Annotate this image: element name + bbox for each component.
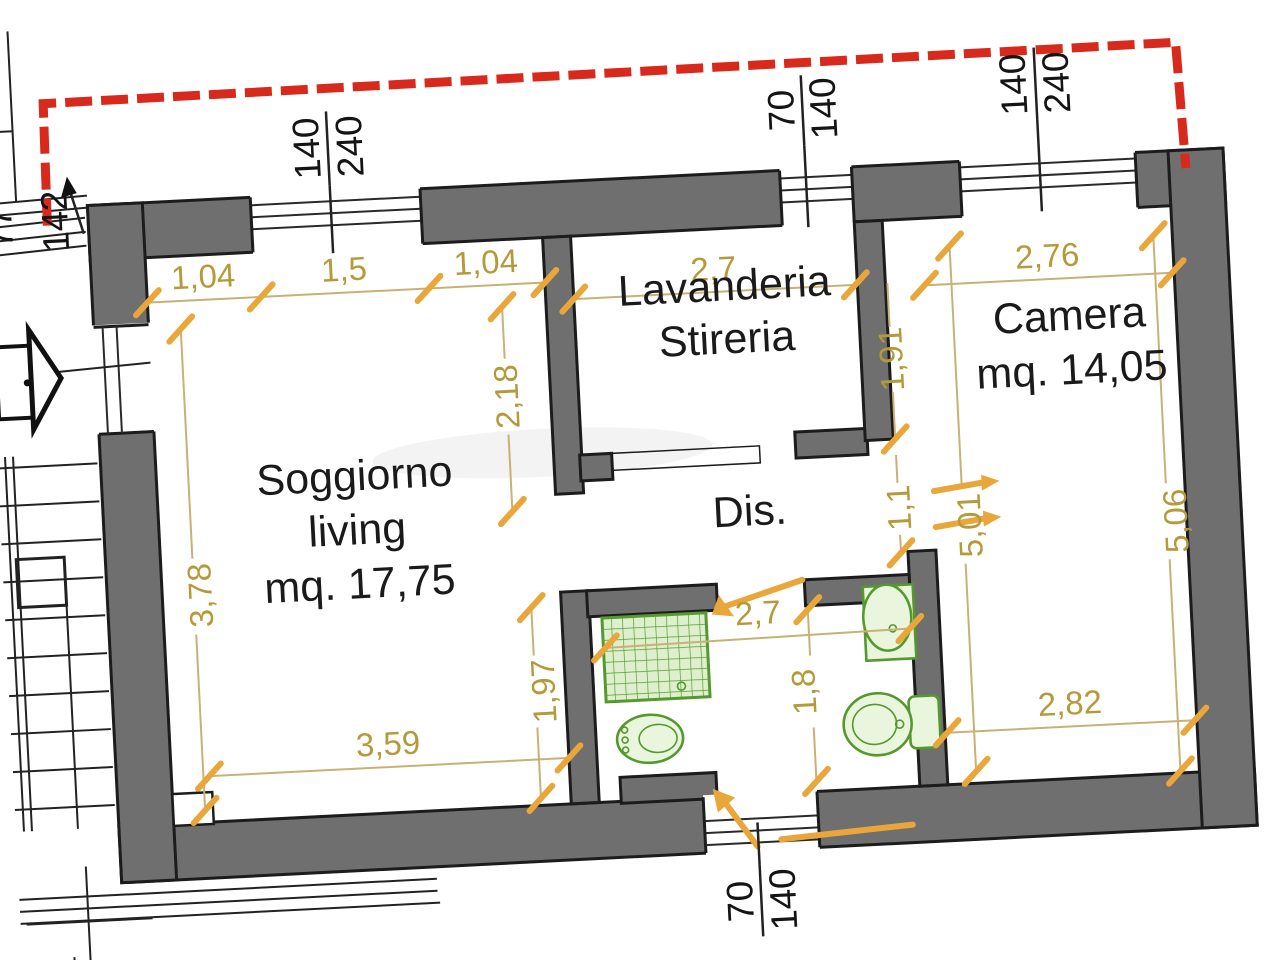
dim-camera-left: 5,01: [950, 492, 990, 558]
window-top-right-height: 240: [1034, 51, 1078, 115]
dim-camera-right: 5,06: [1156, 488, 1196, 554]
dim-sog-right-top: 2,18: [486, 364, 526, 430]
entrance-opening: [89, 322, 157, 434]
room-soggiorno-label-2: living: [307, 504, 407, 557]
window-top-mid: [779, 163, 854, 229]
room-soggiorno-area: mq. 17,75: [263, 555, 456, 613]
floor-plan-svg: 1,04 1,5 1,04 2,18 2,7 2,76 1,91 1,1 5,0…: [0, 0, 1280, 960]
dim-sog-left: 3,78: [180, 562, 220, 628]
dim-sog-top-b: 1,5: [320, 250, 368, 289]
shower: [602, 613, 710, 702]
window-top-left-height: 240: [328, 114, 372, 178]
window-bottom-height: 140: [761, 867, 805, 931]
room-lavanderia-label-2: Stireria: [658, 312, 797, 367]
room-soggiorno-label-1: Soggiorno: [255, 447, 453, 505]
dim-bath-width: 2,7: [734, 593, 782, 632]
bidet: [616, 713, 684, 764]
window-top-mid-width: 70: [760, 89, 803, 132]
left-dim-a: 77: [0, 206, 21, 249]
dim-camera-top: 2,76: [1014, 235, 1080, 275]
dim-lav-right: 1,91: [871, 326, 911, 392]
window-top-mid-height: 140: [801, 76, 845, 140]
dim-dis-passage: 1,1: [879, 484, 918, 532]
left-dim-b: 142: [33, 189, 77, 253]
window-top-right-width: 140: [991, 53, 1035, 117]
window-bottom-width: 70: [719, 880, 762, 923]
dim-sog-right-bottom: 1,97: [523, 658, 563, 724]
room-lavanderia-label-1: Lavanderia: [617, 257, 832, 316]
window-top-left: [250, 185, 423, 256]
room-camera-label: Camera: [992, 288, 1147, 344]
dim-camera-bottom: 2,82: [1037, 683, 1103, 723]
room-dis-label: Dis.: [712, 486, 788, 538]
dim-sog-top-c: 1,04: [453, 242, 519, 282]
toilet: [842, 690, 941, 757]
window-top-right: [959, 149, 1138, 220]
dim-sog-top-a: 1,04: [170, 256, 236, 296]
floor-plan-page: 1,04 1,5 1,04 2,18 2,7 2,76 1,91 1,1 5,0…: [0, 0, 1280, 960]
dim-bath-right: 1,8: [784, 668, 823, 716]
window-top-left-width: 140: [285, 117, 329, 181]
washbasin: [862, 583, 917, 660]
dim-sog-bottom: 3,59: [355, 723, 421, 763]
room-camera-area: mq. 14,05: [975, 341, 1168, 399]
